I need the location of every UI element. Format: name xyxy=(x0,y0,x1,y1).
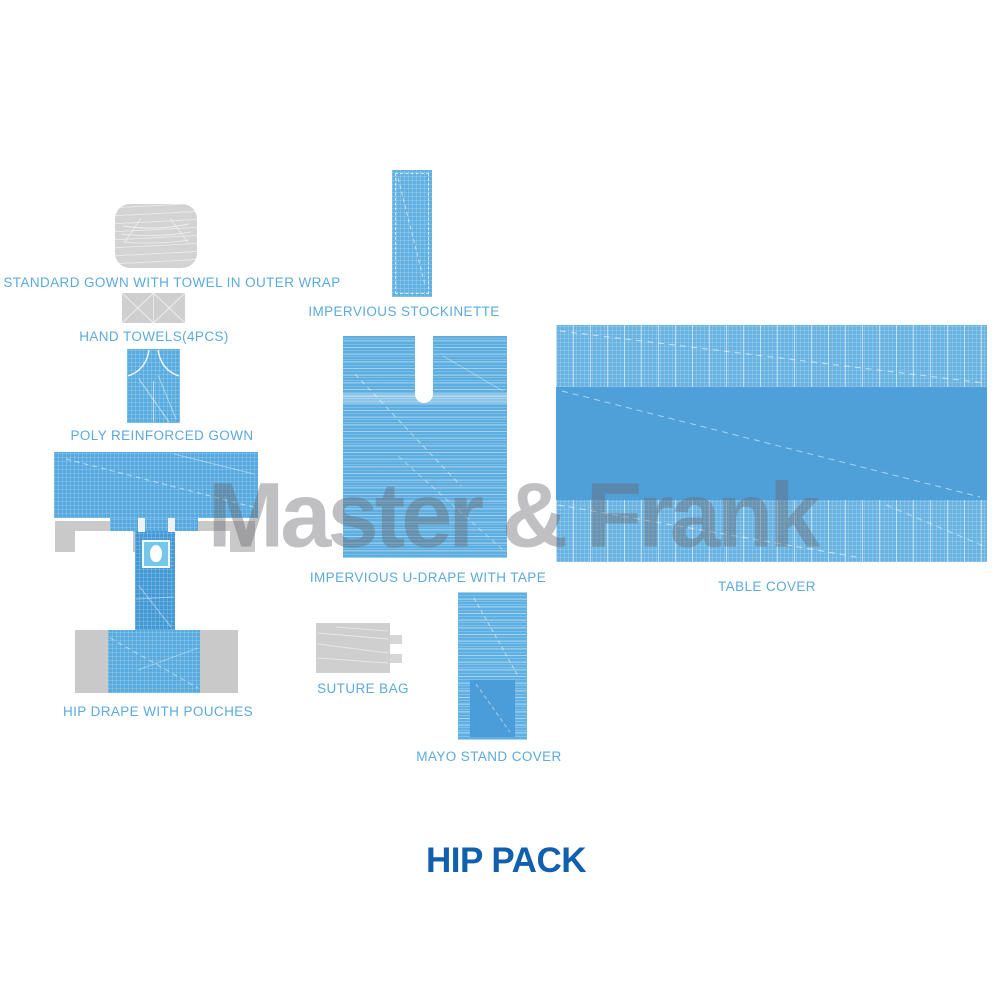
hand-towels-label: HAND TOWELS(4PCS) xyxy=(79,329,229,344)
standard-gown-label: STANDARD GOWN WITH TOWEL IN OUTER WRAP xyxy=(3,275,340,290)
standard-gown-wrap-illustration xyxy=(115,204,197,268)
hip-drape-label: HIP DRAPE WITH POUCHES xyxy=(63,704,253,719)
stockinette-illustration xyxy=(392,170,432,297)
hip-drape-bottom-fold-lines xyxy=(108,630,200,693)
u-drape-label: IMPERVIOUS U-DRAPE WITH TAPE xyxy=(310,570,546,585)
stockinette-fold-line xyxy=(392,170,432,297)
hip-drape-center-strip xyxy=(110,518,198,532)
suture-bag-tab-bottom xyxy=(390,654,402,663)
hand-towels-fold-lines xyxy=(122,293,185,323)
hip-drape-fenestration-film xyxy=(142,540,170,568)
mayo-stand-cover-illustration xyxy=(458,592,527,740)
mayo-stand-cover-label: MAYO STAND COVER xyxy=(416,749,561,764)
mayo-fold-line-bottom xyxy=(470,680,515,737)
poly-gown-fold-lines xyxy=(127,349,180,423)
suture-bag-streak-lines xyxy=(316,623,390,673)
hip-drape-white-panel-left xyxy=(75,531,133,630)
poly-reinforced-gown-illustration xyxy=(127,349,180,423)
suture-bag-tab-top xyxy=(390,635,402,644)
suture-bag-body xyxy=(316,623,390,673)
hip-drape-tape-tab-right xyxy=(168,518,175,532)
brand-watermark: Master & Frank xyxy=(208,464,817,569)
hip-drape-bottom-sheet xyxy=(108,630,200,693)
stockinette-label: IMPERVIOUS STOCKINETTE xyxy=(308,304,499,319)
suture-bag-label: SUTURE BAG xyxy=(317,681,409,696)
gown-wrap-wrinkle-lines xyxy=(115,204,197,268)
hip-drape-fenestration-hole xyxy=(150,545,162,562)
pack-title: HIP PACK xyxy=(426,841,586,881)
suture-bag-illustration xyxy=(316,623,402,673)
mayo-stand-cover-dark-panel xyxy=(470,680,515,737)
hand-towels-illustration xyxy=(122,293,185,323)
hip-drape-tape-tab-left xyxy=(138,518,145,532)
hip-pack-diagram: Master & Frank STANDARD GOWN WITH TOWEL … xyxy=(0,0,1000,1000)
table-cover-label: TABLE COVER xyxy=(718,579,816,594)
poly-gown-label: POLY REINFORCED GOWN xyxy=(70,428,253,443)
